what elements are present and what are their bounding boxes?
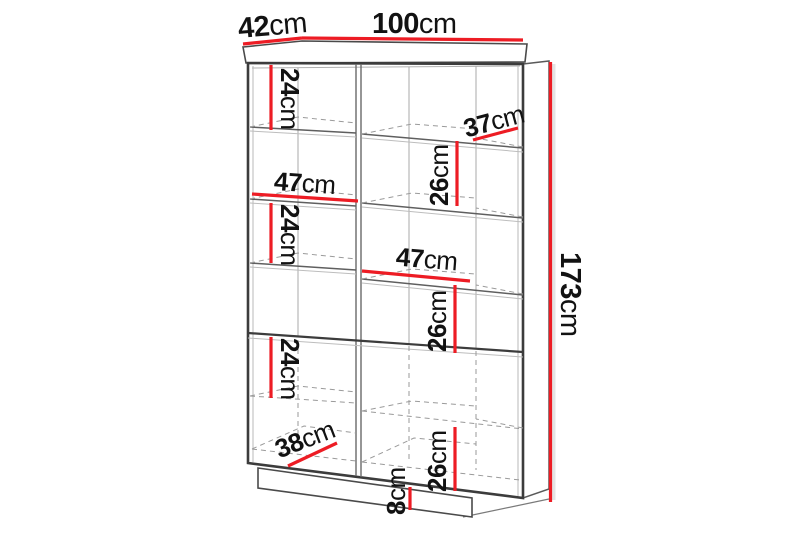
dimension-diagram: 42cm 100cm 173cm 24cm 24cm 24cm 26cm 26c… [0,0,800,533]
label-interior-width-left: 47cm [273,168,336,198]
label-plinth-height: 8cm [383,467,409,515]
label-left-cell-2: 24cm [277,204,303,266]
label-interior-width-right: 47cm [395,244,458,275]
label-left-cell-1: 24cm [277,68,303,130]
label-right-cell-2: 26cm [424,290,450,352]
label-height-173: 173cm [555,252,584,337]
cabinet-top-panel [243,41,527,63]
label-right-cell-1: 26cm [426,144,452,206]
label-width-100: 100cm [372,10,457,39]
label-depth-42: 42cm [237,9,308,44]
label-right-cell-3: 26cm [424,430,450,492]
label-left-cell-3: 24cm [277,338,303,400]
